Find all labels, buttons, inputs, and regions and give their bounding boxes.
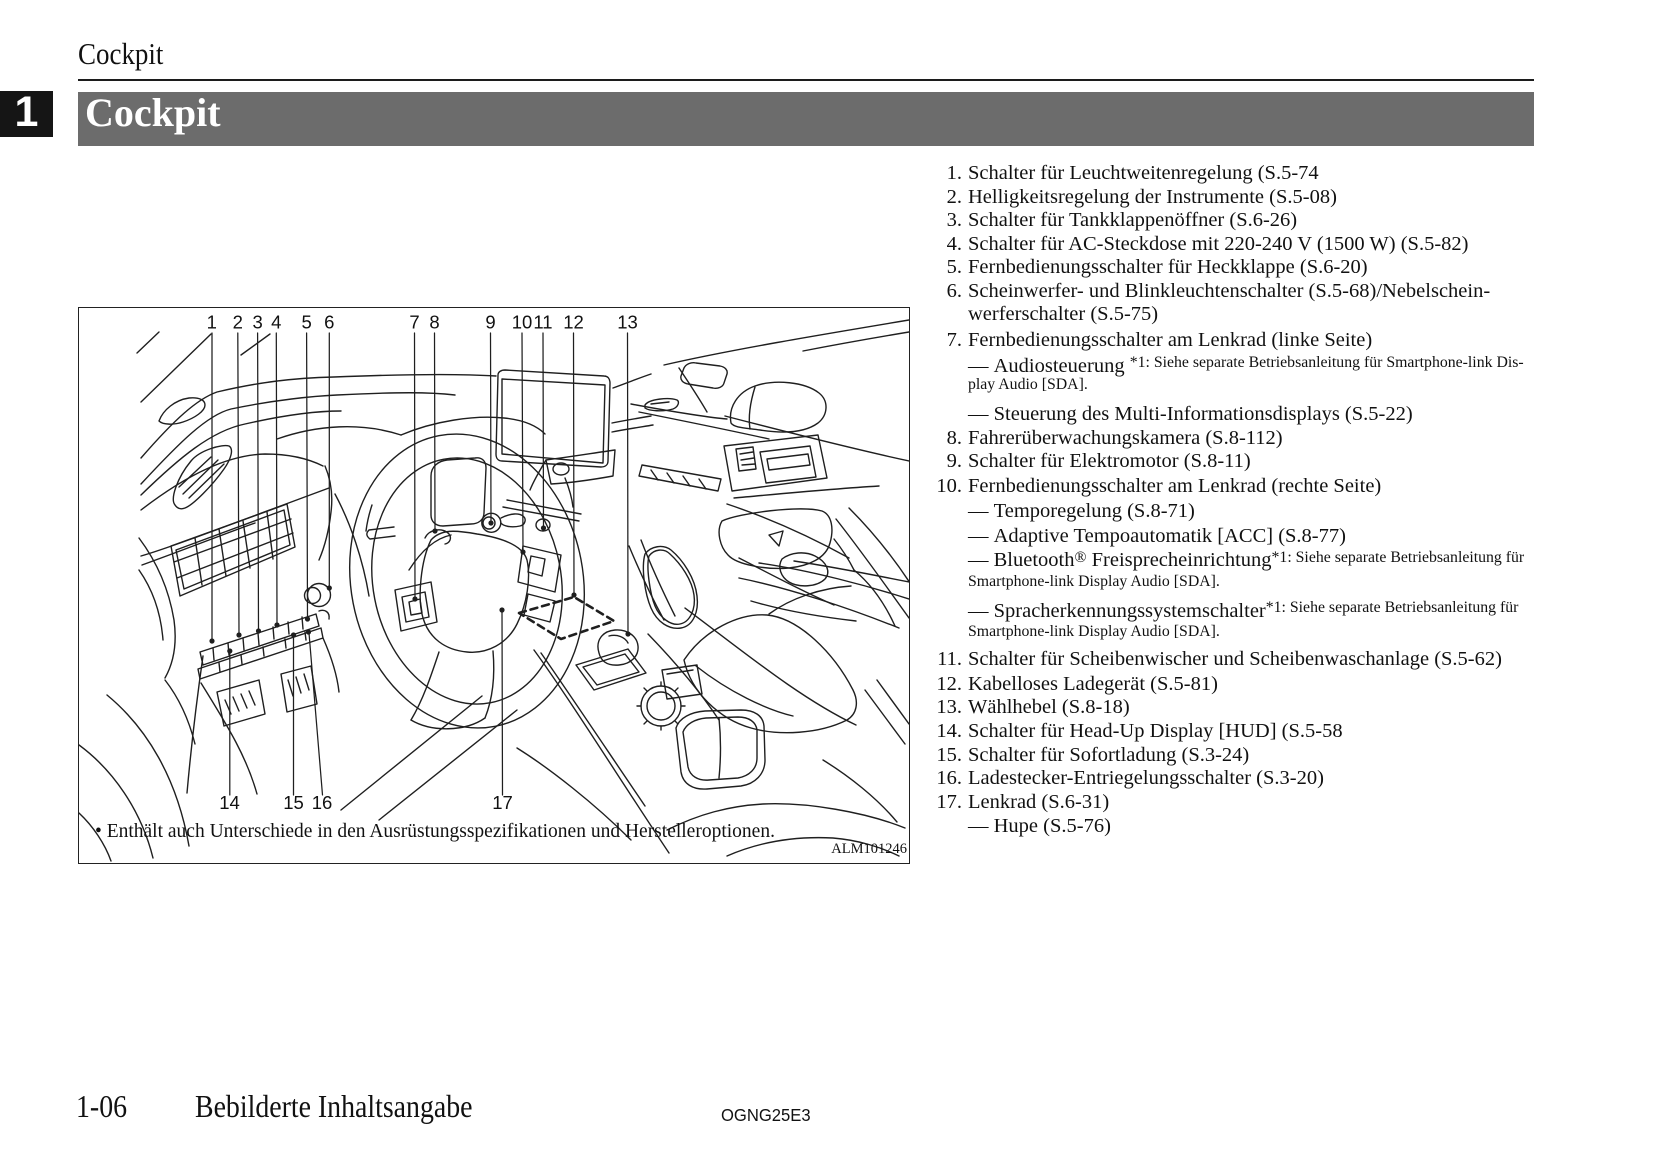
svg-text:7: 7 — [409, 312, 419, 333]
svg-text:13: 13 — [617, 312, 638, 333]
svg-text:8: 8 — [429, 312, 439, 333]
svg-text:2: 2 — [233, 312, 243, 333]
svg-text:12: 12 — [563, 312, 584, 333]
svg-text:3: 3 — [252, 312, 262, 333]
svg-text:6: 6 — [324, 312, 334, 333]
svg-text:9: 9 — [485, 312, 495, 333]
svg-text:1: 1 — [207, 312, 217, 333]
svg-text:4: 4 — [271, 312, 281, 333]
svg-text:5: 5 — [301, 312, 311, 333]
svg-text:11: 11 — [533, 312, 552, 333]
svg-text:10: 10 — [512, 312, 533, 333]
